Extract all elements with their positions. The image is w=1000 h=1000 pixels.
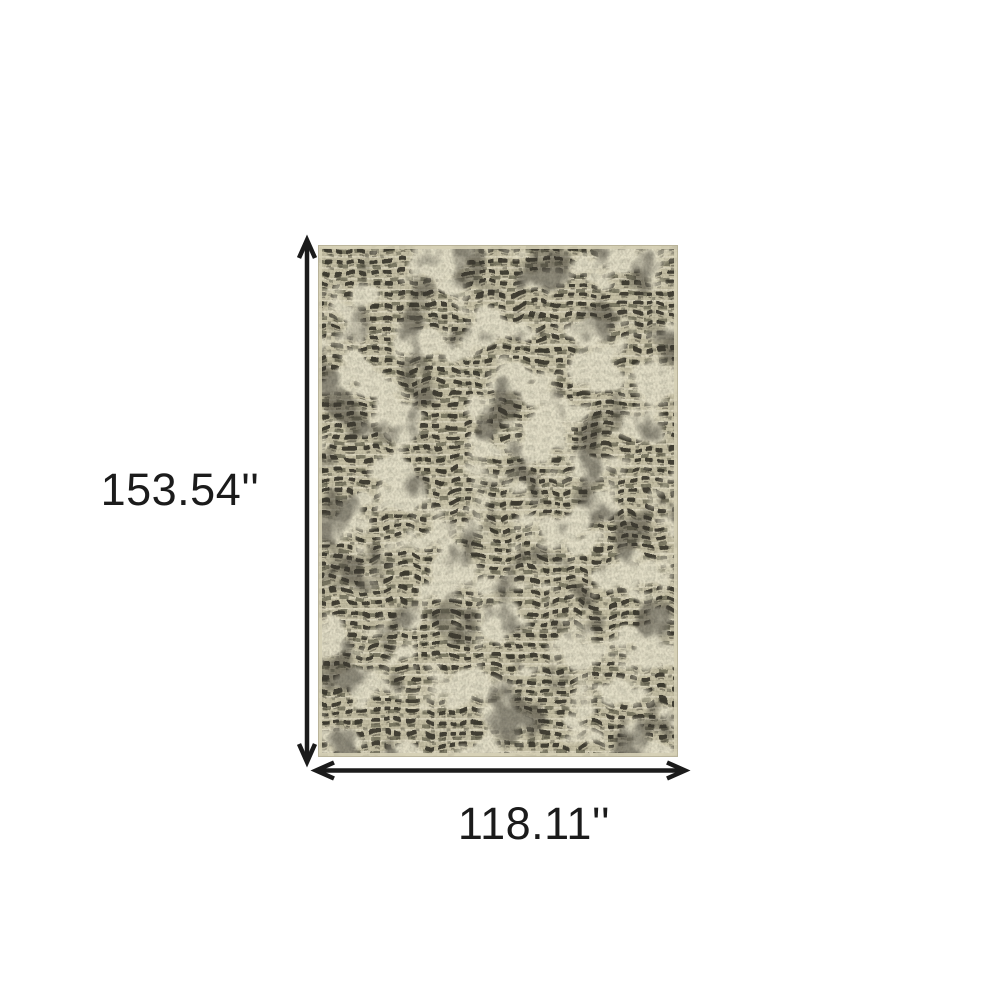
page-root: 153.54'' 118.11'' xyxy=(0,0,1000,1000)
rug-image xyxy=(318,245,678,757)
height-dimension-label: 153.54'' xyxy=(95,462,265,518)
height-arrow xyxy=(299,240,315,762)
arrowhead-down-icon xyxy=(299,744,315,762)
width-arrow xyxy=(316,763,685,779)
width-dimension-label: 118.11'' xyxy=(454,796,614,852)
arrowhead-up-icon xyxy=(299,240,315,258)
arrowhead-right-icon xyxy=(667,763,685,779)
arrowhead-left-icon xyxy=(316,763,334,779)
